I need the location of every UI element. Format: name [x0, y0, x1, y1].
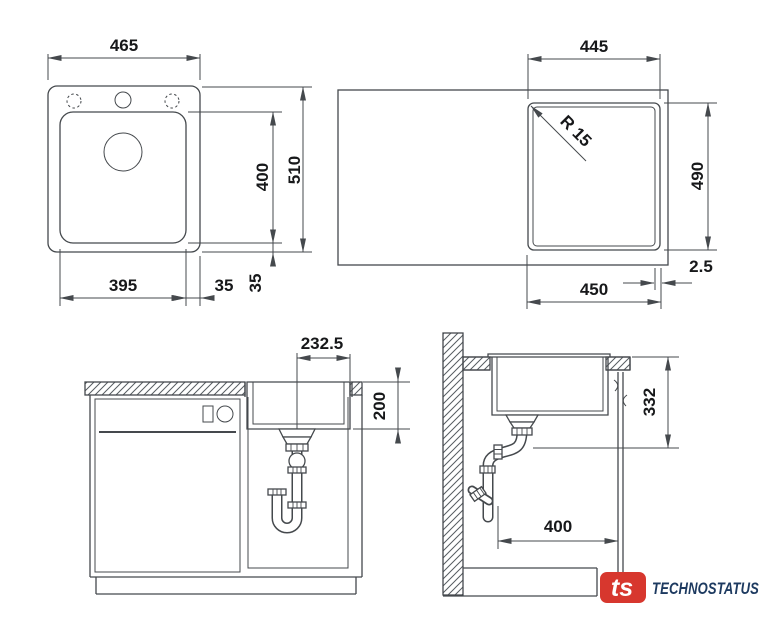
cutout-inner-line	[533, 107, 655, 246]
dim-clearance-label: 400	[544, 517, 572, 536]
logo-company-name: TECHNOSTATUS	[652, 580, 759, 598]
cabinet-front-lines	[618, 372, 623, 597]
drain-flange	[279, 429, 315, 437]
pipe-coupling	[288, 467, 306, 473]
drain-trap-assembly	[268, 429, 315, 528]
dim-bowl-depth-label: 200	[370, 392, 389, 420]
view-front-elevation: 232.5 200	[85, 334, 410, 594]
appliance-front-panel	[95, 399, 240, 572]
pipe-coupling	[480, 466, 495, 473]
drain-trap-assembly	[470, 415, 538, 517]
pipe-coupling	[494, 445, 502, 459]
basin-outer-wall	[492, 357, 608, 415]
pipe-coupling	[288, 502, 306, 508]
pipe-coupling	[286, 444, 308, 451]
dim-overall-width-label: 465	[110, 36, 138, 55]
logo-monogram: ts	[611, 574, 633, 602]
view-cutout-plan: 445 R 15 490 450 2.5	[338, 37, 717, 309]
control-slot	[203, 406, 213, 422]
dim-bottom-offset-label: 35	[246, 274, 265, 293]
cabinet-outline	[90, 395, 362, 594]
pipe-coupling	[268, 489, 286, 495]
view-side-elevation: 332 400	[443, 333, 679, 597]
rim-edges	[245, 382, 352, 397]
drain-flange	[506, 415, 538, 422]
sink-outline	[48, 86, 200, 252]
dim-installation-depth-label: 332	[640, 388, 659, 416]
dim-bowl-width-label: 450	[580, 280, 608, 299]
brand-logo: ts TECHNOSTATUS	[600, 572, 759, 603]
basin-outer-wall	[247, 382, 350, 429]
dim-cutout-width-label: 445	[580, 37, 608, 56]
dim-drain-offset-label: 232.5	[301, 334, 344, 353]
corner-radius-label: R 15	[556, 112, 595, 151]
break-marks	[614, 380, 627, 406]
dim-reveal-label: 2.5	[689, 257, 713, 276]
dim-bowl-width-label: 395	[109, 276, 137, 295]
dim-overall-length-label: 510	[285, 156, 304, 184]
dim-right-offset-label: 35	[215, 276, 234, 295]
basin-inner-wall	[253, 382, 344, 424]
bowl-outline	[60, 112, 186, 243]
technical-drawing-canvas: 465 400 510 395 35 35 445 R 15 490 450 2…	[0, 0, 764, 640]
cutout-outline	[528, 103, 660, 250]
tap-hole-right	[165, 94, 179, 108]
tap-hole-center	[115, 92, 131, 108]
dim-cutout-length-label: 490	[688, 162, 707, 190]
worktop-section-left	[463, 357, 490, 370]
dim-bowl-length-label: 400	[253, 163, 272, 191]
drain-flange-lower	[510, 422, 534, 428]
basin-inner-wall	[497, 357, 603, 411]
tap-hole-left	[67, 94, 81, 108]
technical-drawing-page: 465 400 510 395 35 35 445 R 15 490 450 2…	[0, 0, 764, 640]
worktop-section-left	[85, 382, 245, 395]
extension-lines	[498, 357, 679, 549]
wall-section	[443, 333, 463, 595]
drain-circle	[104, 133, 142, 171]
worktop-outline	[338, 90, 668, 265]
worktop-section-right	[606, 357, 630, 370]
view-sink-plan: 465 400 510 395 35 35	[48, 36, 312, 306]
drain-flange-lower	[283, 437, 311, 444]
control-knob	[217, 406, 233, 422]
floor-lines	[443, 568, 597, 596]
pipe-coupling	[512, 428, 532, 435]
extension-lines	[48, 54, 312, 306]
